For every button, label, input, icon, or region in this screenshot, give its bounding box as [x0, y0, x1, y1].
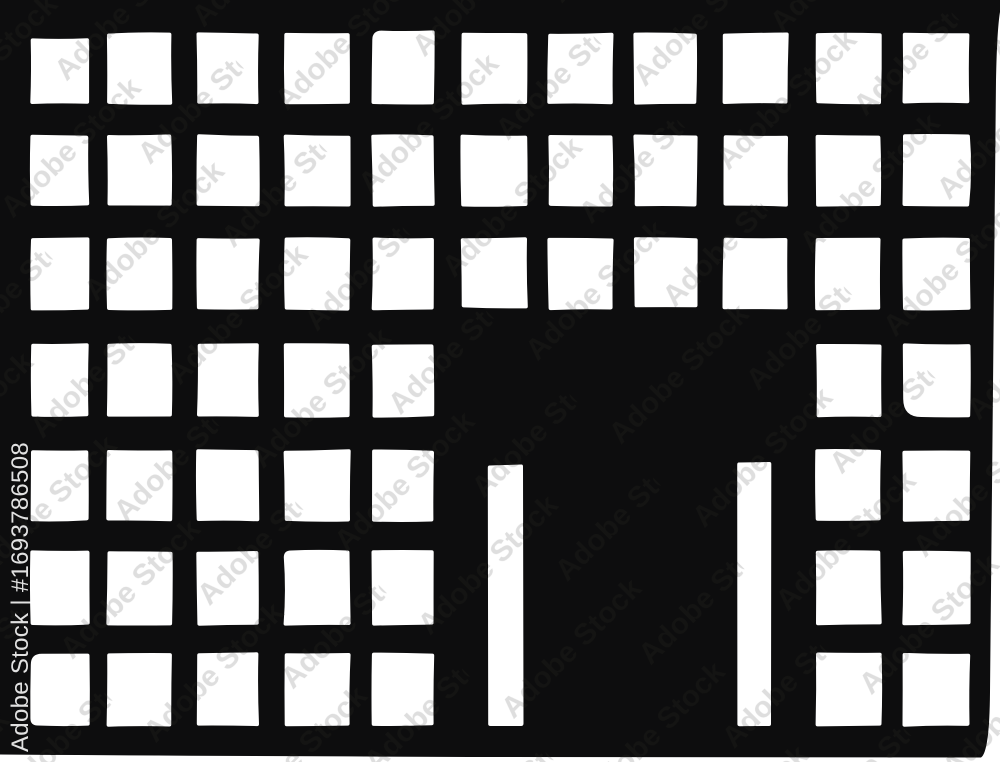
svg-text:Adobe Stock | #1693786508: Adobe Stock | #1693786508 — [7, 442, 34, 752]
